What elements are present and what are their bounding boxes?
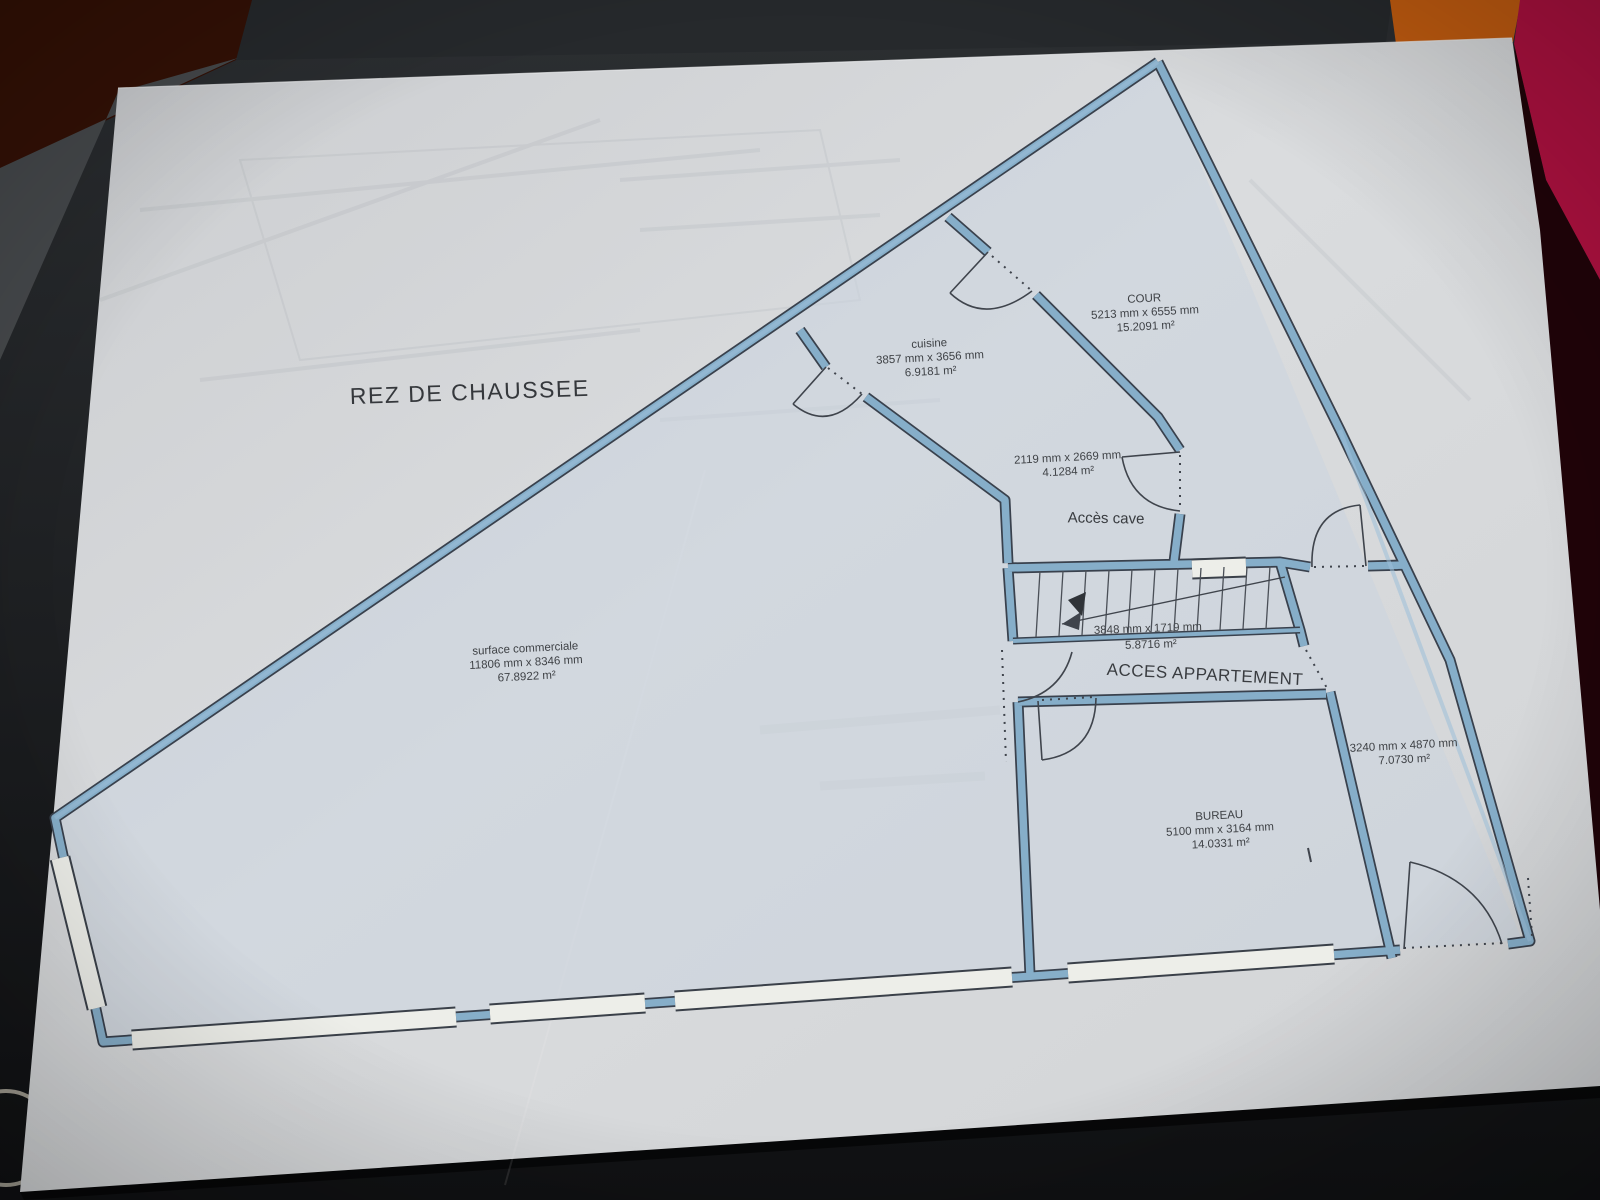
floor-plan-scene: 3848 mm x 1719 mm 5.8716 m² bbox=[0, 0, 1600, 1200]
floor-plan-photo: 3848 mm x 1719 mm 5.8716 m² bbox=[0, 0, 1600, 1200]
vignette bbox=[0, 0, 1600, 1200]
